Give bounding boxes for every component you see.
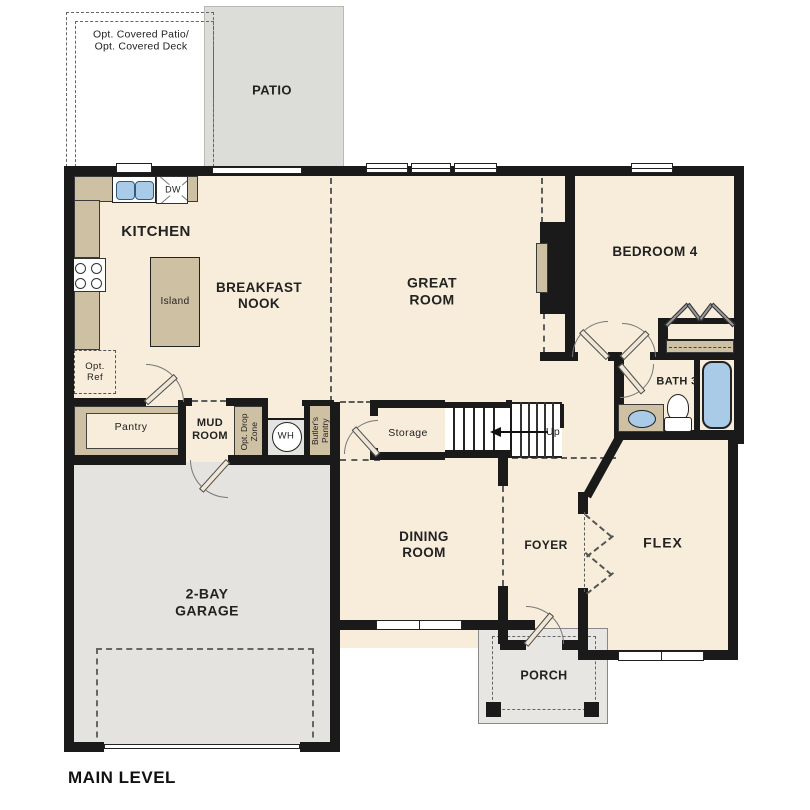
wall [694,353,700,435]
porch-column [584,702,599,717]
stair-tread [520,402,522,458]
kitchen-sink [112,176,156,203]
wall [734,166,744,444]
fireplace-insert [536,243,548,293]
water-heater-label: WH [278,430,295,441]
foyer-dining-opening [502,486,504,586]
sink-basin [135,181,154,200]
stove [70,258,106,292]
garage-label: 2-BAY GARAGE [175,585,239,618]
window [366,163,408,173]
kitchen-counter [74,200,100,258]
opt-patio-label: Opt. Covered Patio/ Opt. Covered Deck [93,29,189,54]
window [631,163,673,173]
wall [64,455,186,465]
dishwasher: DW [156,176,188,204]
garage-door [104,744,300,749]
patio-label: PATIO [252,82,292,97]
pantry-label: Pantry [115,421,148,433]
window [376,620,462,630]
wall [370,400,445,408]
dining-room-label: DINING ROOM [399,529,449,561]
mud-room-label: MUD ROOM [192,417,228,443]
ceiling-break [330,178,332,402]
stair-direction-arrowhead [490,427,501,437]
ceiling-break [541,178,543,223]
window [454,163,497,173]
ceiling-break [543,313,545,353]
floor-plan: DW [0,0,810,810]
breakfast-nook-label: BREAKFAST NOOK [216,280,302,312]
window [618,651,704,661]
wall [370,400,378,416]
wall [262,400,268,462]
foyer-label: FOYER [524,538,567,552]
kitchen-counter [74,176,114,202]
opt-ref-label: Opt. Ref [85,361,105,383]
wall [228,455,336,465]
sink-basin [116,181,135,200]
porch-column [486,702,501,717]
flex-label: FLEX [643,535,683,552]
wall [498,455,508,486]
butlers-pantry-label: Butler's Pantry [310,417,330,445]
bathtub [702,361,732,429]
wall [178,400,186,460]
stair-tread [463,408,465,450]
porch-label: PORCH [520,669,567,684]
stair-direction-line [500,431,548,433]
window [411,163,451,173]
drop-zone-label: Opt. Drop Zone [239,414,259,451]
dishwasher-label: DW [164,185,182,196]
great-room-label: GREAT ROOM [407,274,457,307]
wall [370,452,445,460]
stair-tread [473,408,475,450]
sliding-door [212,167,302,174]
vanity-sink [628,410,656,428]
closet-shelf [666,339,734,353]
bath3-label: BATH 3 [656,376,697,389]
ceiling-break [340,401,372,403]
window [116,163,152,173]
kitchen-counter [74,290,100,350]
stair-tread [536,402,538,458]
stair-tread [528,402,530,458]
kitchen-label: KITCHEN [121,223,190,241]
up-label: Up [546,426,560,438]
wall [64,398,146,406]
wall [578,588,588,652]
wall [728,436,738,660]
wall [694,353,738,359]
toilet-tank [664,417,692,432]
wall [498,586,508,644]
storage-label: Storage [388,427,428,439]
island-label: Island [160,296,189,308]
bedroom4-label: BEDROOM 4 [612,244,697,260]
stair-tread [483,408,485,450]
garage-door-outline [96,648,314,748]
wall [500,640,526,650]
plan-title: MAIN LEVEL [68,768,176,788]
wall [64,742,104,752]
stair-tread [453,408,455,450]
stair-rail [560,404,564,428]
ceiling-break [192,400,226,402]
